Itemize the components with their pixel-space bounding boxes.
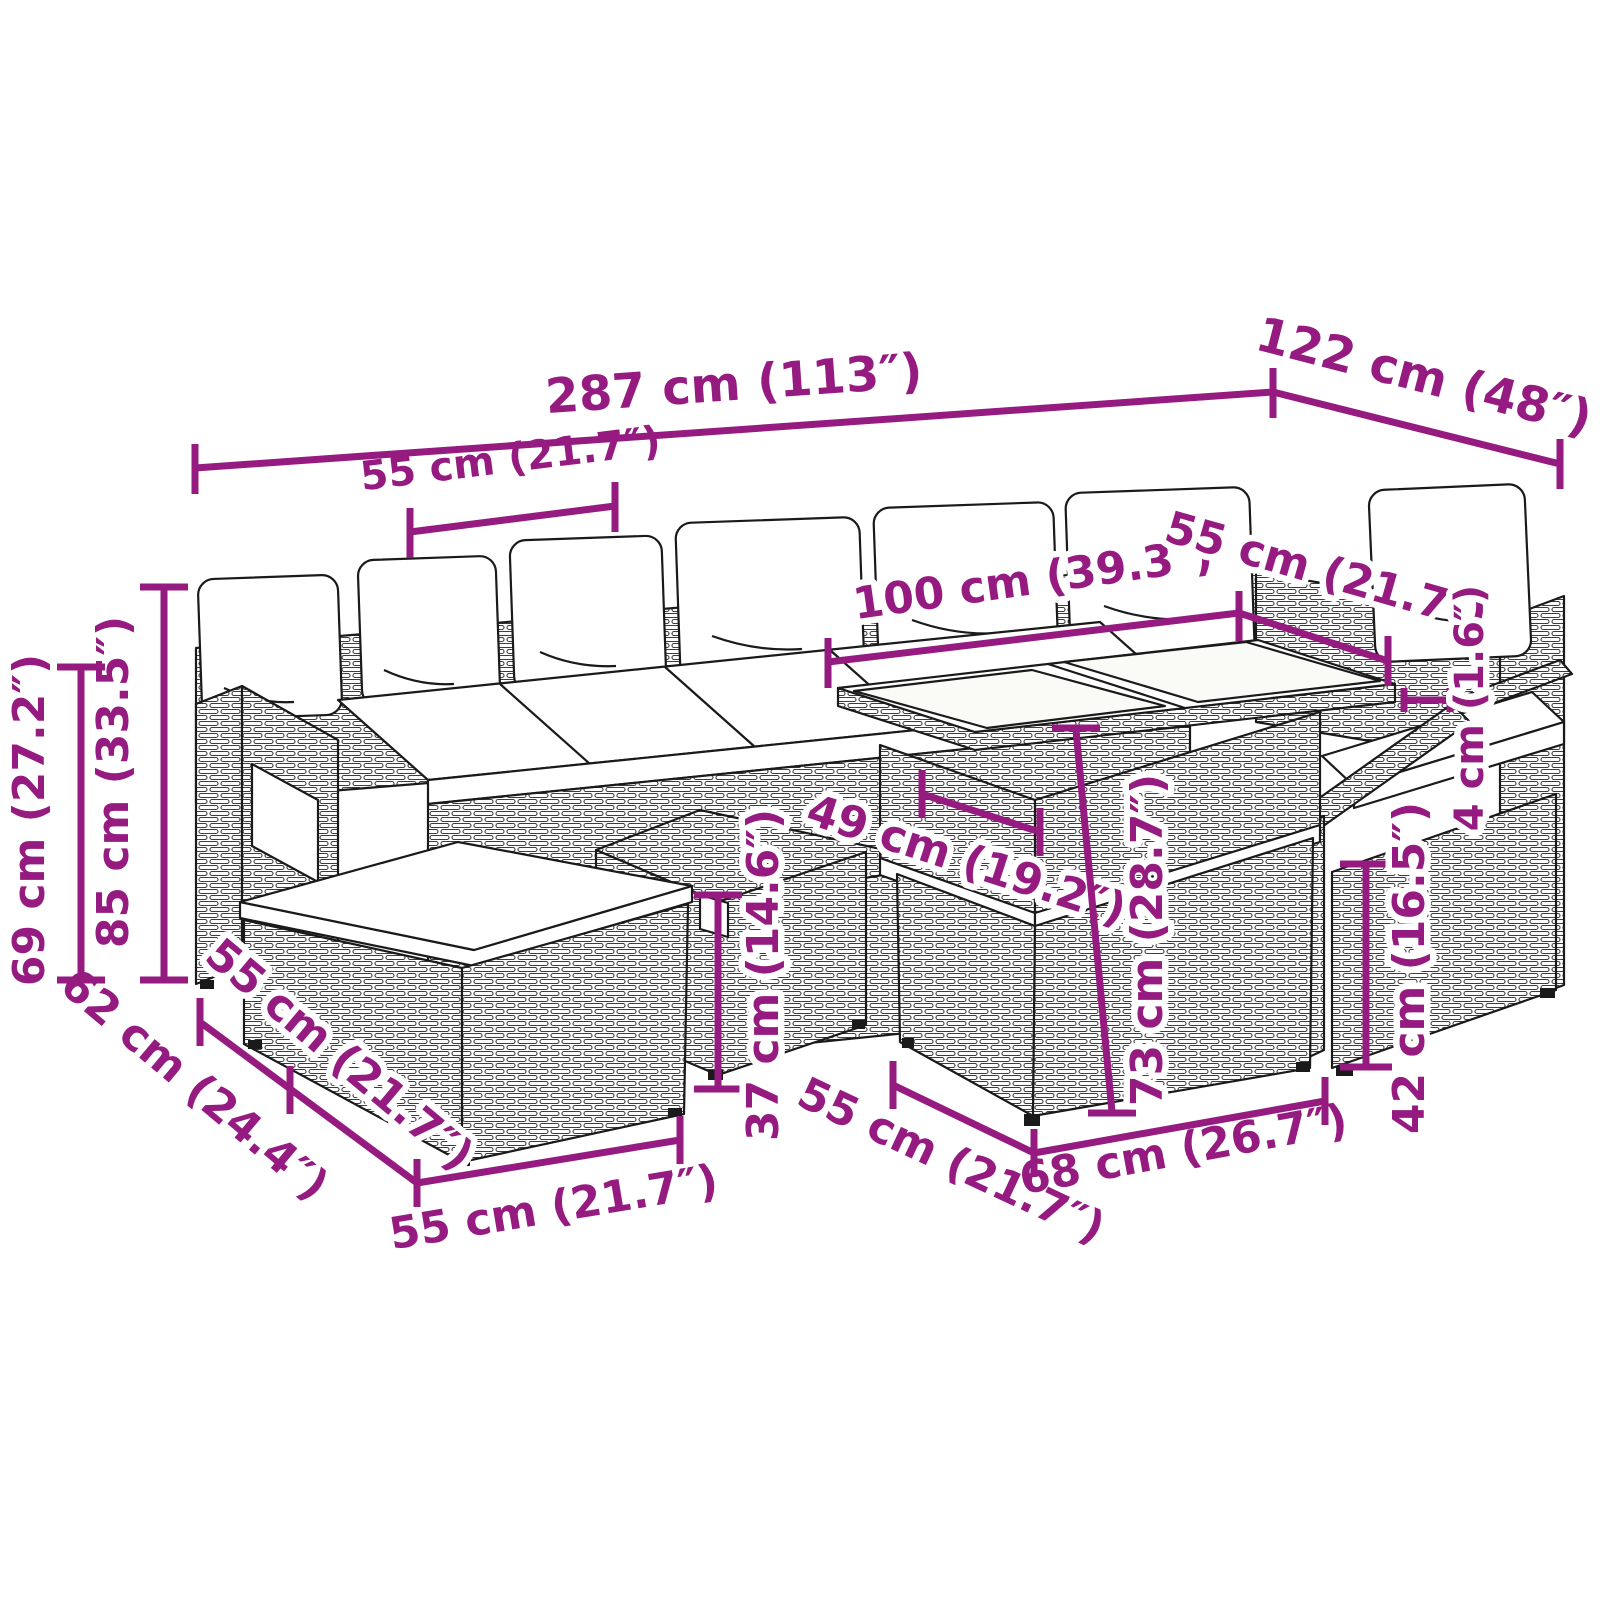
dim-label-37: 37 cm (14.6″) — [738, 809, 789, 1141]
dim-overall-width: 287 cm (113″) — [195, 343, 1273, 494]
dim-label-122: 122 cm (48″) — [1250, 306, 1597, 446]
foot — [1540, 988, 1555, 998]
dim-label-287: 287 cm (113″) — [544, 343, 925, 425]
dim-label-73: 73 cm (28.7″) — [1122, 774, 1173, 1106]
dimension-diagram: 287 cm (113″) 122 cm (48″) 55 cm (21.7″)… — [0, 0, 1600, 1600]
dim-label-42: 42 cm (16.5″) — [1384, 802, 1435, 1134]
foot — [1024, 1114, 1040, 1126]
low-ottoman-handle — [700, 895, 728, 937]
dim-overall-depth: 122 cm (48″) — [1250, 306, 1597, 489]
dim-label-4: 4 cm (1.6″) — [1447, 585, 1493, 831]
foot — [248, 1040, 262, 1049]
dim-label-55-bottom: 55 cm (21.7″) — [386, 1155, 722, 1260]
foot — [852, 1020, 865, 1029]
foot — [1296, 1062, 1310, 1072]
diagram-canvas: 287 cm (113″) 122 cm (48″) 55 cm (21.7″)… — [0, 0, 1600, 1600]
foot — [668, 1108, 682, 1117]
dim-label-69: 69 cm (27.2″) — [4, 654, 55, 986]
foot — [902, 1038, 914, 1048]
arm-foot — [200, 980, 214, 989]
dim-back-height: 85 cm (33.5″) — [88, 587, 188, 980]
